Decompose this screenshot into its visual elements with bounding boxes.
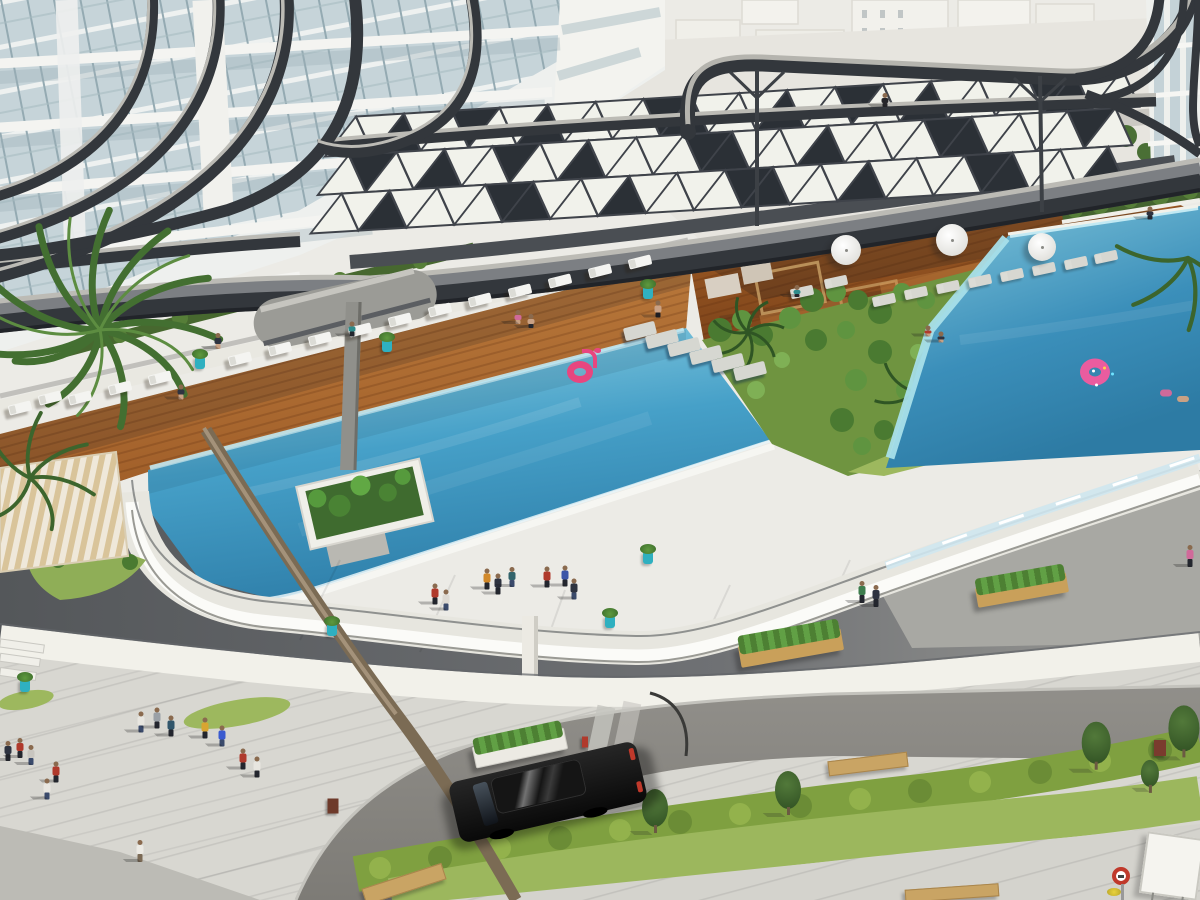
scene-base-art [0,0,1200,900]
resort-aerial-scene [0,0,1200,900]
